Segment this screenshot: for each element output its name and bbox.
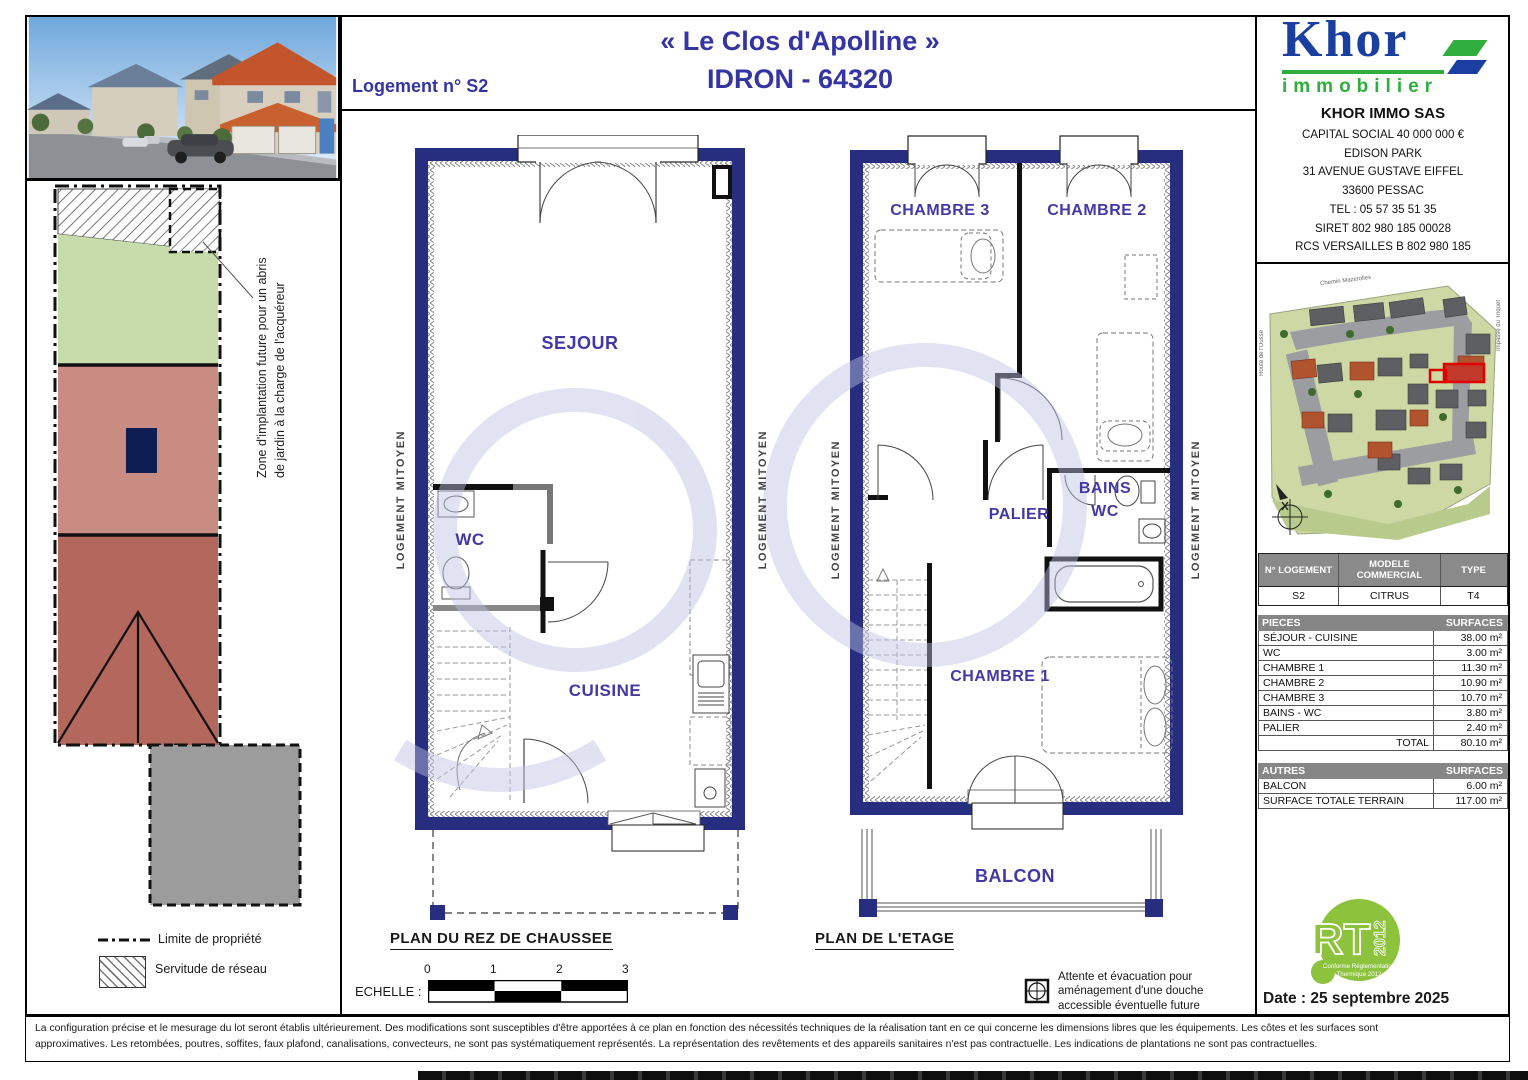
upper-floor-plan-drawing — [825, 135, 1210, 945]
divider-left-column — [340, 15, 342, 1016]
scale-bar — [428, 980, 628, 1004]
room-label-balcon: BALCON — [955, 866, 1075, 887]
autres-table: AUTRES SURFACES BALCON6.00 m²SURFACE TOT… — [1258, 763, 1508, 809]
room-label-sejour: SEJOUR — [520, 333, 640, 354]
plan-sheet: Logement n° S2 « Le Clos d'Apolline » ID… — [0, 0, 1528, 1080]
khor-logo-word: Khor — [1282, 10, 1408, 69]
rt-letters: RT — [1312, 915, 1371, 964]
divider-right-column — [1255, 15, 1257, 1016]
table-cell-value: 2.40 m² — [1434, 721, 1507, 735]
pieces-total-row: TOTAL 80.10 m² — [1258, 736, 1508, 751]
pieces-table-header: PIECES SURFACES — [1258, 615, 1508, 631]
site-map — [1258, 272, 1508, 547]
party-wall-label: LOGEMENT MITOYEN — [1190, 440, 1202, 579]
pieces-table: PIECES SURFACES SÉJOUR - CUISINE38.00 m²… — [1258, 615, 1508, 751]
development-photo — [25, 15, 340, 180]
company-line: TEL : 05 57 35 51 35 — [1262, 201, 1504, 220]
page-subtitle: IDRON - 64320 — [360, 64, 1240, 95]
khor-logo-swoosh2-icon — [1447, 60, 1487, 74]
table-cell-label: PALIER — [1259, 721, 1434, 735]
scale-tick-1: 1 — [490, 962, 497, 976]
party-wall-label: LOGEMENT MITOYEN — [757, 430, 769, 569]
street-left-label: Route de l'Ousse — [1259, 330, 1265, 376]
company-name: KHOR IMMO SAS — [1262, 105, 1504, 122]
table-cell-label: BAINS - WC — [1259, 706, 1434, 720]
street-right-label: Impasse du Triquet — [1496, 300, 1502, 351]
scale-tick-0: 0 — [424, 962, 431, 976]
table-cell-value: 10.90 m² — [1434, 676, 1507, 690]
scale-tick-3: 3 — [622, 962, 629, 976]
servitude-label: Servitude de réseau — [155, 962, 267, 976]
zone-note: Zone d'implantation future pour un abris… — [253, 248, 311, 478]
table-row: CHAMBRE 310.70 m² — [1258, 691, 1508, 706]
info-table-row: S2 CITRUS T4 — [1259, 586, 1507, 605]
scale-tick-2: 2 — [556, 962, 563, 976]
info-table-header: N° LOGEMENT MODELE COMMERCIAL TYPE — [1259, 554, 1507, 586]
room-label-cuisine: CUISINE — [545, 681, 665, 701]
table-row: CHAMBRE 210.90 m² — [1258, 676, 1508, 691]
table-cell-label: CHAMBRE 3 — [1259, 691, 1434, 705]
table-cell-value: 6.00 m² — [1434, 779, 1507, 793]
table-row: PALIER2.40 m² — [1258, 721, 1508, 736]
room-label-bains-wc: WC — [1070, 503, 1140, 521]
table-row: CHAMBRE 111.30 m² — [1258, 661, 1508, 676]
room-label-chambre2: CHAMBRE 2 — [1037, 202, 1157, 220]
room-label-palier: PALIER — [979, 506, 1059, 524]
col-header: N° LOGEMENT — [1259, 554, 1339, 586]
party-wall-label: LOGEMENT MITOYEN — [830, 440, 842, 579]
header-underline — [340, 109, 1257, 111]
bottom-scan-bar — [418, 1071, 1528, 1080]
shower-note: Attente et évacuation pour aménagement d… — [1058, 970, 1228, 1013]
svg-text:Thermique 2012: Thermique 2012 — [1336, 971, 1382, 978]
disclaimer: La configuration précise et le mesurage … — [25, 1016, 1510, 1062]
table-cell-label: CHAMBRE 1 — [1259, 661, 1434, 675]
table-cell-value: 38.00 m² — [1434, 631, 1507, 645]
room-label-bains: BAINS — [1070, 480, 1140, 498]
company-underline — [1255, 262, 1510, 264]
date-label: Date : 25 septembre 2025 — [1263, 990, 1449, 1008]
khor-logo: Khor immobilier — [1280, 18, 1490, 106]
table-row: BALCON6.00 m² — [1258, 779, 1508, 794]
room-label-chambre1: CHAMBRE 1 — [940, 668, 1060, 686]
table-row: WC3.00 m² — [1258, 646, 1508, 661]
col-header: TYPE — [1441, 554, 1506, 586]
servitude-sample — [99, 956, 146, 988]
table-cell-label: CHAMBRE 2 — [1259, 676, 1434, 690]
disclaimer-line2: approximatives. Les retombées, poutres, … — [35, 1037, 1500, 1053]
logement-info-table: N° LOGEMENT MODELE COMMERCIAL TYPE S2 CI… — [1258, 553, 1508, 606]
scale-label: ECHELLE : — [355, 984, 421, 999]
autres-table-header: AUTRES SURFACES — [1258, 763, 1508, 779]
company-line: SIRET 802 980 185 00028 — [1262, 220, 1504, 239]
col-header: MODELE COMMERCIAL — [1339, 554, 1441, 586]
table-row: SURFACE TOTALE TERRAIN117.00 m² — [1258, 794, 1508, 809]
company-line: 33600 PESSAC — [1262, 182, 1504, 201]
page-title: « Le Clos d'Apolline » — [360, 26, 1240, 57]
room-label-chambre3: CHAMBRE 3 — [880, 202, 1000, 220]
table-cell-value: 10.70 m² — [1434, 691, 1507, 705]
limite-line-sample — [98, 934, 150, 946]
khor-logo-rule — [1282, 70, 1444, 74]
company-line: 31 AVENUE GUSTAVE EIFFEL — [1262, 163, 1504, 182]
table-row: SÉJOUR - CUISINE38.00 m² — [1258, 631, 1508, 646]
svg-text:Conforme Réglementation: Conforme Réglementation — [1323, 963, 1396, 970]
company-line: RCS VERSAILLES B 802 980 185 — [1262, 238, 1504, 257]
khor-logo-swoosh-icon — [1442, 40, 1487, 56]
table-cell-value: 11.30 m² — [1434, 661, 1507, 675]
table-cell-value: 3.80 m² — [1434, 706, 1507, 720]
table-cell-value: 117.00 m² — [1434, 794, 1507, 808]
table-cell-label: WC — [1259, 646, 1434, 660]
shower-drain-icon — [1024, 978, 1050, 1004]
company-line: CAPITAL SOCIAL 40 000 000 € — [1262, 126, 1504, 145]
company-lines: CAPITAL SOCIAL 40 000 000 €EDISON PARK31… — [1262, 126, 1504, 257]
outer-border-right — [1508, 15, 1510, 1017]
ground-plan-title: PLAN DU REZ DE CHAUSSEE — [390, 930, 613, 950]
party-wall-label: LOGEMENT MITOYEN — [395, 430, 407, 569]
khor-logo-sub: immobilier — [1282, 76, 1438, 98]
disclaimer-line1: La configuration précise et le mesurage … — [35, 1021, 1500, 1037]
table-cell-label: SURFACE TOTALE TERRAIN — [1259, 794, 1434, 808]
room-label-wc: WC — [445, 530, 495, 550]
table-row: BAINS - WC3.80 m² — [1258, 706, 1508, 721]
table-cell-value: 3.00 m² — [1434, 646, 1507, 660]
limite-label: Limite de propriété — [158, 932, 262, 946]
table-cell-label: SÉJOUR - CUISINE — [1259, 631, 1434, 645]
upper-plan-title: PLAN DE L'ETAGE — [815, 930, 954, 950]
rt-year: 2012 — [1372, 920, 1389, 956]
rt-2012-badge: RT 2012 Conforme Réglementation Thermiqu… — [1303, 898, 1413, 990]
company-line: EDISON PARK — [1262, 145, 1504, 164]
table-cell-label: BALCON — [1259, 779, 1434, 793]
